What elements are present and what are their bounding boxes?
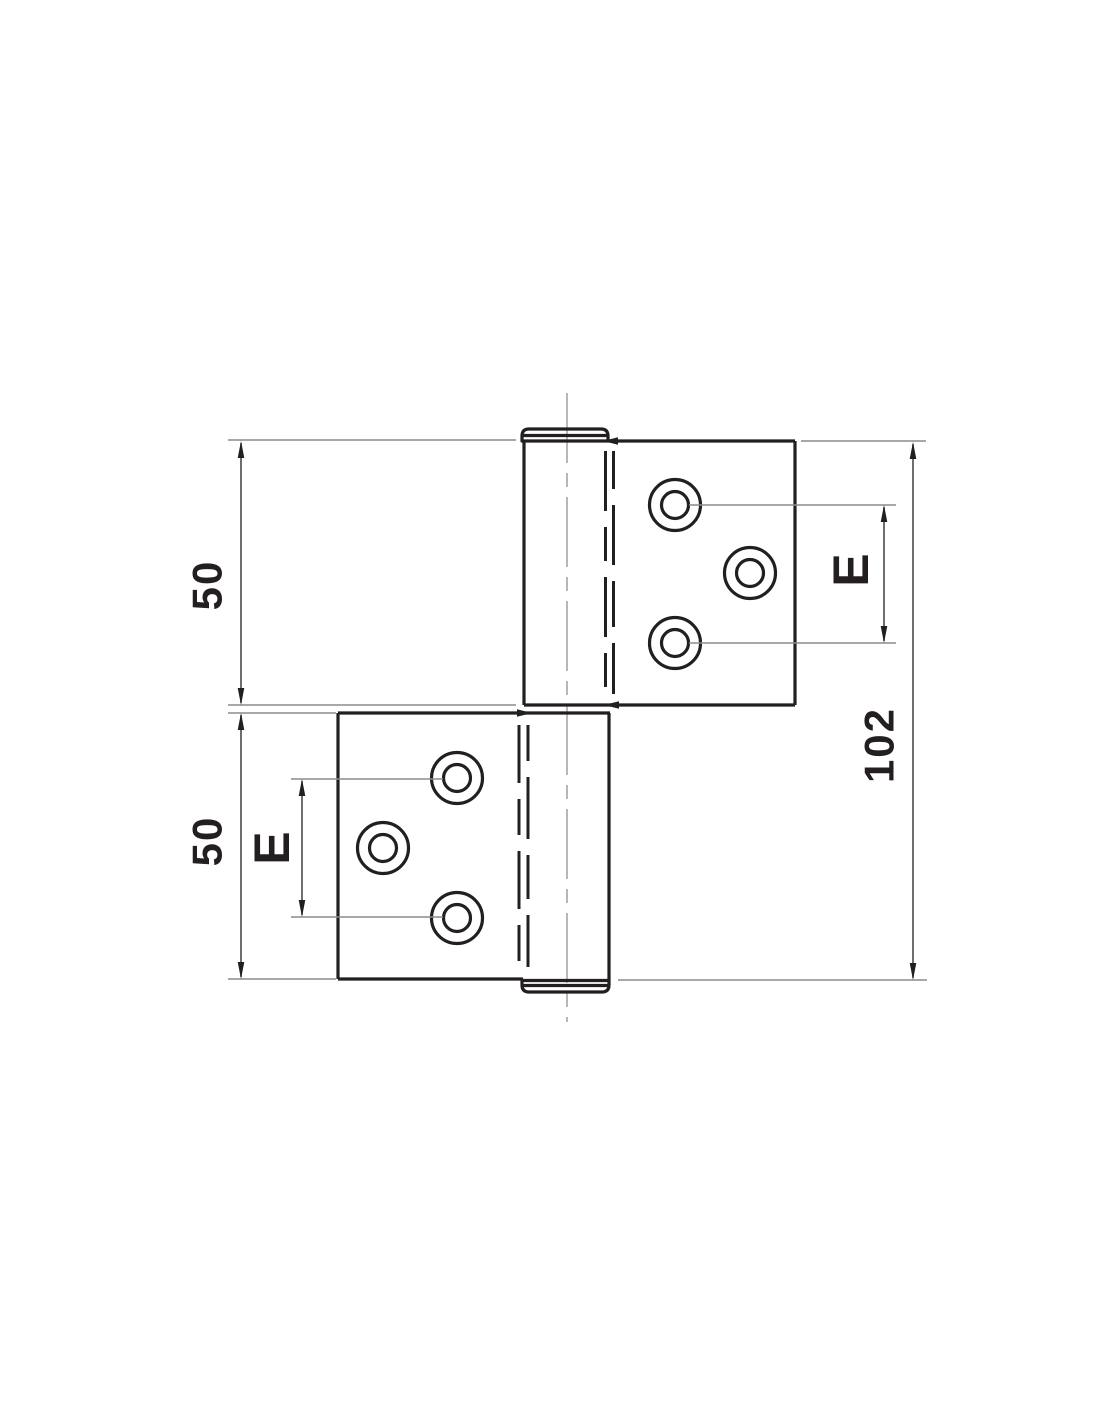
hinge-pin — [522, 429, 609, 992]
dimension-arrow-up — [238, 441, 245, 458]
dimension-label-e-top: E — [823, 553, 879, 586]
dimension-arrow-up — [910, 442, 917, 459]
screw-hole-inner — [444, 765, 471, 792]
leaf-edge-marker-arrow — [604, 701, 619, 708]
dimension-arrow-down — [238, 688, 245, 705]
bottom-leaf — [338, 709, 610, 979]
dimension-label-102: 102 — [856, 707, 903, 783]
dimension-label-50-bottom: 50 — [184, 816, 231, 867]
dimension-arrow-down — [881, 626, 888, 643]
hinge-technical-drawing-page: 50 50 102 E — [0, 0, 1100, 1422]
screw-hole-inner — [370, 835, 397, 862]
screw-hole-inner — [662, 630, 689, 657]
dimension-arrow-down — [910, 963, 917, 980]
top-leaf-screw-holes — [650, 480, 776, 669]
dimension-102-total: 102 — [618, 441, 927, 980]
top-leaf — [522, 437, 795, 708]
dimension-50-top: 50 — [184, 440, 517, 705]
screw-hole-inner — [662, 492, 689, 519]
dimension-e-top: E — [689, 505, 896, 643]
dimension-e-bottom: E — [244, 779, 443, 917]
hinge-diagram: 50 50 102 E — [0, 0, 1100, 1422]
screw-hole-outer — [725, 548, 776, 599]
screw-hole-outer — [432, 893, 483, 944]
leaf-edge-marker-arrow — [517, 709, 532, 716]
dimension-arrow-up — [238, 713, 245, 730]
screw-hole-outer — [358, 823, 409, 874]
bottom-leaf-screw-holes — [358, 753, 483, 944]
screw-hole-inner — [444, 905, 471, 932]
dimension-label-e-bottom: E — [244, 831, 300, 864]
dimension-arrow-down — [238, 962, 245, 979]
screw-hole-outer — [432, 753, 483, 804]
dimension-arrow-down — [299, 900, 306, 917]
leaf-edge-marker-arrow — [603, 437, 618, 444]
dimension-arrow-up — [299, 779, 306, 796]
screw-hole-inner — [737, 560, 764, 587]
dimension-label-50-top: 50 — [184, 560, 231, 611]
dimension-arrow-up — [881, 505, 888, 522]
